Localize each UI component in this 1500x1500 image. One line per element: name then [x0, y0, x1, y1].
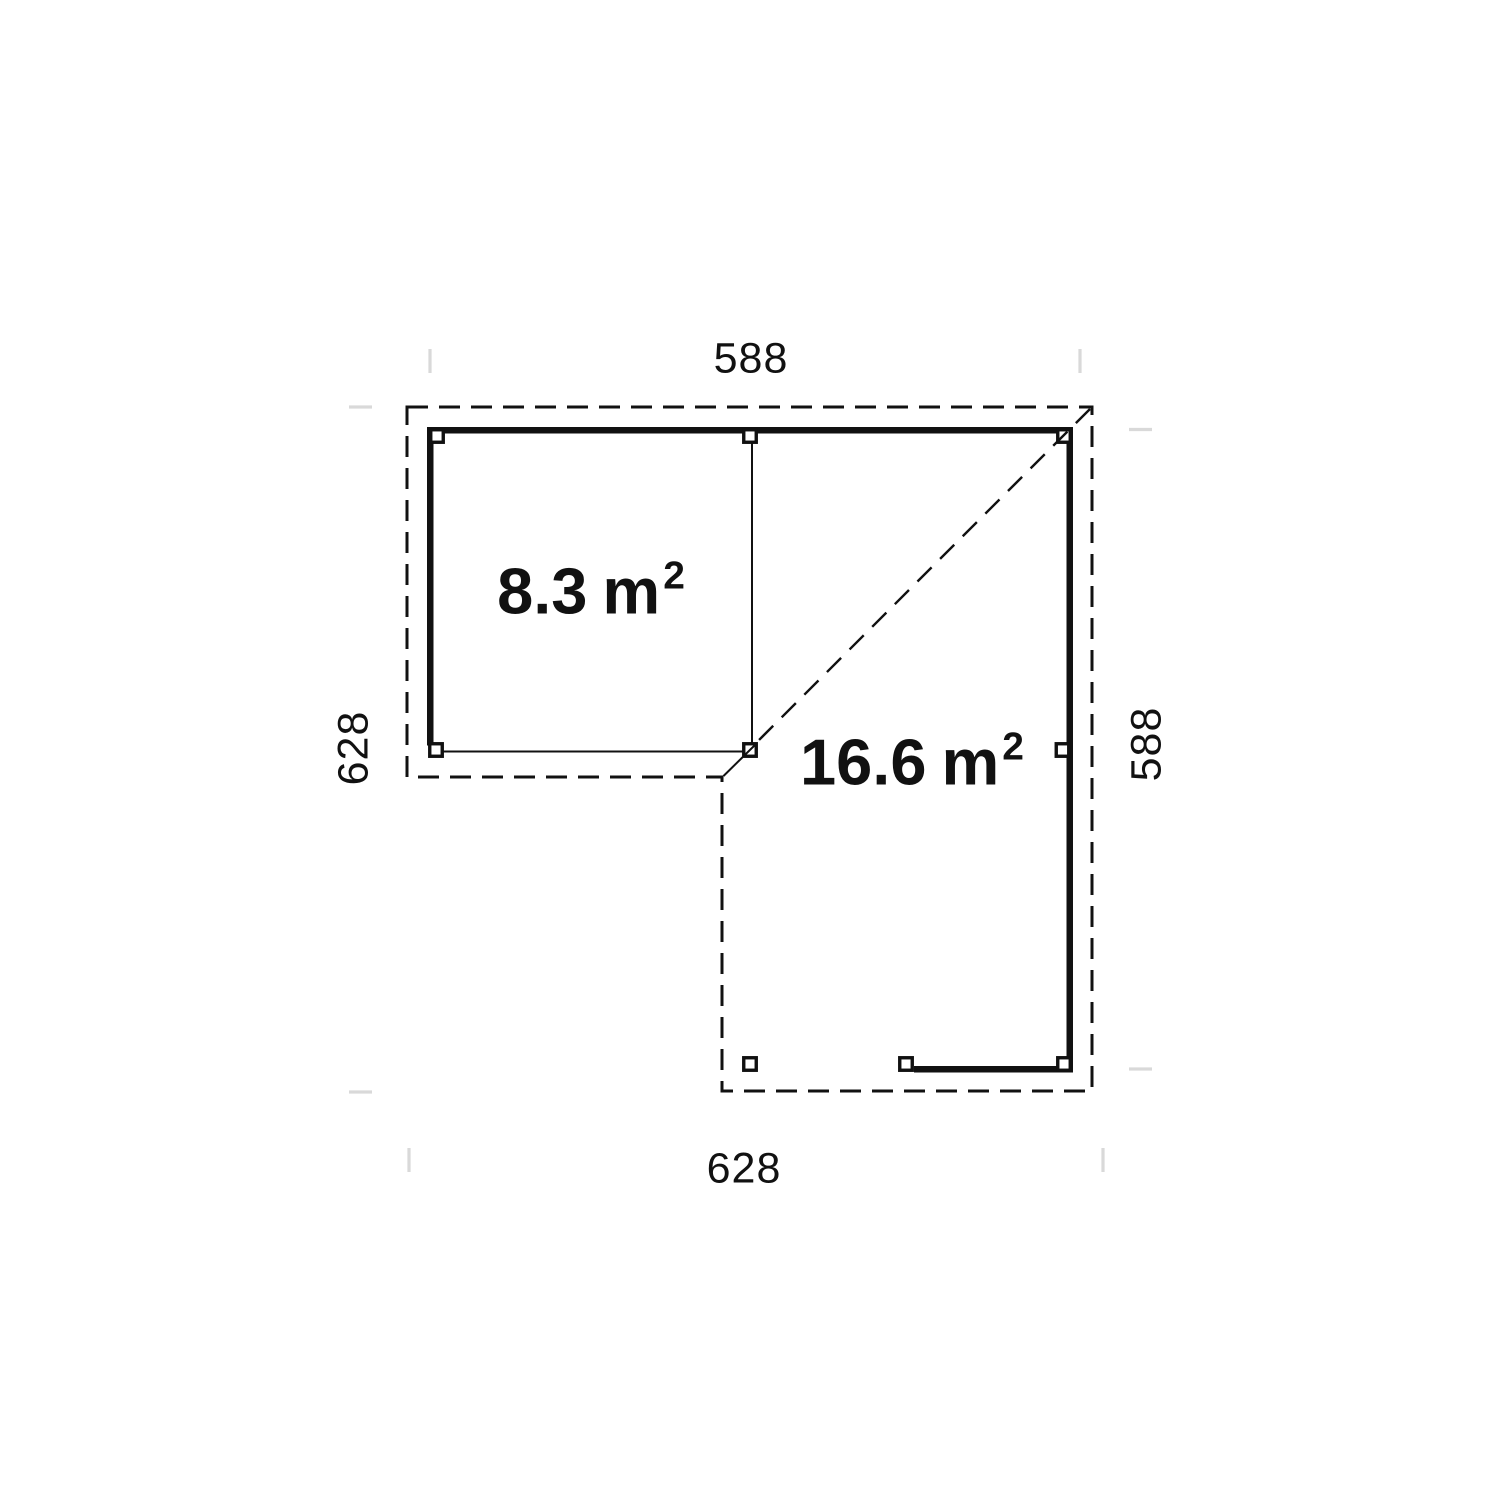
- dimension-left-label: 628: [333, 711, 376, 786]
- room-small-area-unit: m: [602, 555, 660, 628]
- wall-bottom-right: [914, 1066, 1073, 1073]
- post-middle-left: [430, 744, 443, 757]
- post-bottom-right: [1058, 1058, 1071, 1071]
- room-small-area-exponent: 2: [663, 555, 685, 598]
- floor-plan-drawing: [0, 0, 1500, 1500]
- dimension-top-label: 588: [714, 338, 789, 381]
- dimension-ticks: [349, 349, 1152, 1172]
- post-middle-right: [1056, 744, 1069, 757]
- post-bottom-middle: [900, 1058, 913, 1071]
- post-top-left: [431, 430, 444, 443]
- room-large-area-unit: m: [942, 726, 1000, 799]
- room-large-area-value: 16.6: [800, 726, 927, 799]
- post-top-middle: [744, 430, 757, 443]
- dimension-right-label: 588: [1126, 707, 1169, 782]
- room-small-area-value: 8.3: [497, 555, 587, 628]
- wall-left: [427, 427, 434, 746]
- post-bottom-left: [744, 1058, 757, 1071]
- diagonal-brace-dashed: [754, 409, 1090, 745]
- floor-plan-canvas: 588 628 628 588 8.3m2 16.6m2: [0, 0, 1500, 1500]
- room-large-area-label: 16.6m2: [800, 728, 1024, 795]
- room-small-area-label: 8.3m2: [497, 557, 685, 624]
- room-large-area-exponent: 2: [1002, 726, 1024, 769]
- diagonal-brace-solid-stub: [724, 744, 757, 776]
- dimension-bottom-label: 628: [707, 1148, 782, 1191]
